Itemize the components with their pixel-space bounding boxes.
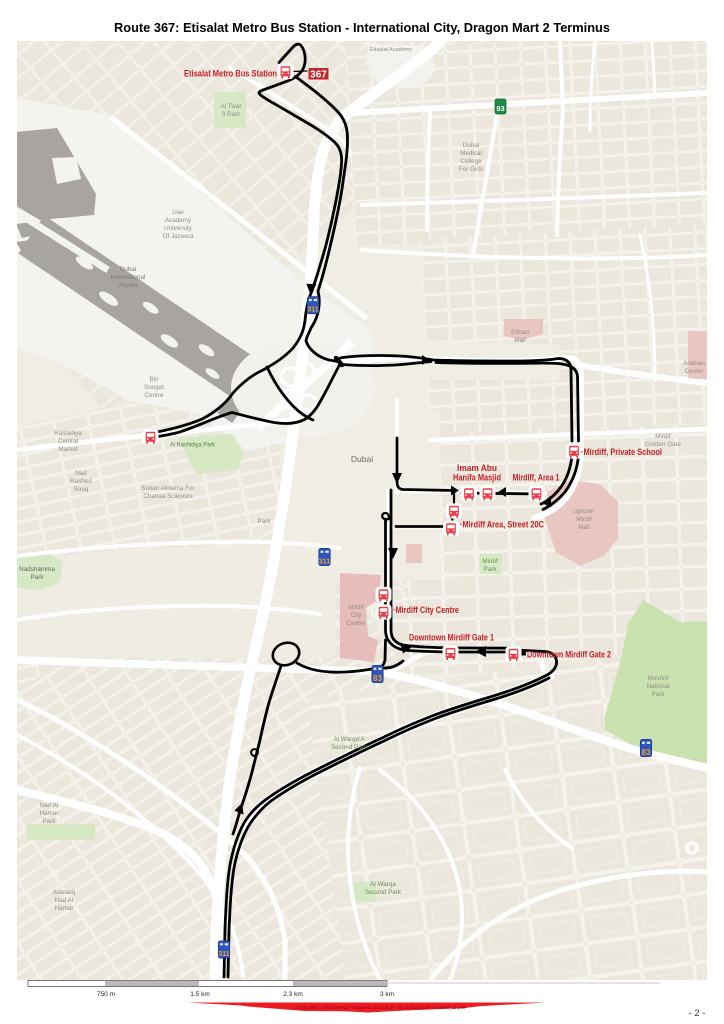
svg-text:Dubai: Dubai <box>351 454 373 464</box>
svg-text:Arabian: Arabian <box>683 360 705 367</box>
svg-text:City: City <box>351 612 363 619</box>
svg-text:National: National <box>646 683 669 690</box>
svg-text:Park: Park <box>258 518 272 525</box>
svg-text:Mirdif: Mirdif <box>576 516 592 523</box>
svg-text:Golden Gate: Golden Gate <box>645 441 681 448</box>
svg-text:Hamar: Hamar <box>40 810 59 817</box>
svg-text:3 km: 3 km <box>380 991 394 998</box>
svg-text:Rashed: Rashed <box>70 478 92 485</box>
svg-text:Al Rashidiya Park: Al Rashidiya Park <box>170 442 216 449</box>
svg-text:Second Park: Second Park <box>365 889 402 896</box>
svg-text:·Mirdiff, Private School: ·Mirdiff, Private School <box>581 447 662 458</box>
svg-text:Etisalat Academy: Etisalat Academy <box>370 47 412 53</box>
svg-text:Aswaaq: Aswaaq <box>53 889 76 896</box>
svg-text:Park: Park <box>31 574 45 581</box>
svg-text:Al Warqa'A: Al Warqa'A <box>333 736 365 743</box>
svg-text:Mall: Mall <box>514 337 526 344</box>
svg-text:Nad Al: Nad Al <box>40 802 59 809</box>
svg-text:Dubai: Dubai <box>463 142 479 149</box>
svg-text:University: University <box>164 225 192 232</box>
svg-text:311: 311 <box>307 307 318 314</box>
svg-text:1.5 km: 1.5 km <box>190 991 210 998</box>
svg-text:311: 311 <box>218 951 229 958</box>
svg-text:Souq: Souq <box>74 486 89 493</box>
svg-text:Mirdif: Mirdif <box>348 604 364 611</box>
svg-text:For Girls: For Girls <box>459 166 483 173</box>
svg-text:GRJFLIVE1 - GRJFLIVE-Cg - WpSe: GRJFLIVE1 - GRJFLIVE-Cg - WpServer (10.0… <box>295 1005 465 1010</box>
svg-text:Etisalat Metro Bus Station: Etisalat Metro Bus Station <box>184 69 277 80</box>
svg-text:83: 83 <box>642 748 651 757</box>
svg-text:Mirdif: Mirdif <box>655 433 671 440</box>
svg-text:Park: Park <box>484 566 498 573</box>
svg-text:Centre: Centre <box>347 620 366 627</box>
svg-text:Mushrif: Mushrif <box>648 675 669 682</box>
svg-text:Al Warqa: Al Warqa <box>370 881 396 888</box>
svg-text:Chariaa Sciences: Chariaa Sciences <box>143 493 192 500</box>
svg-text:Hamar: Hamar <box>55 905 74 912</box>
svg-text:311: 311 <box>319 559 330 566</box>
svg-text:Sultan Alolama For: Sultan Alolama For <box>141 485 194 492</box>
svg-text:2.3 km: 2.3 km <box>283 991 303 998</box>
svg-text:- 2 -: - 2 - <box>689 1008 706 1019</box>
svg-text:Bin: Bin <box>149 376 159 383</box>
svg-text:Hanifa Masjid: Hanifa Masjid <box>453 473 501 484</box>
svg-text:93: 93 <box>496 104 504 113</box>
svg-text:Central: Central <box>58 438 78 445</box>
svg-text:Center: Center <box>685 368 704 375</box>
svg-text:Airport: Airport <box>119 282 138 289</box>
svg-text:College: College <box>460 158 482 165</box>
svg-text:367: 367 <box>310 69 327 80</box>
svg-text:Etihad: Etihad <box>511 329 529 336</box>
svg-text:Second Park: Second Park <box>331 744 368 751</box>
svg-text:3 Park: 3 Park <box>222 111 241 118</box>
svg-text:Dubai: Dubai <box>120 266 136 273</box>
svg-text:Nadshamma: Nadshamma <box>19 566 55 573</box>
svg-text:Academy: Academy <box>165 217 192 224</box>
svg-text:Sougat: Sougat <box>144 384 164 391</box>
svg-text:Route 367: Etisalat Metro Bus: Route 367: Etisalat Metro Bus Station - … <box>114 20 610 35</box>
svg-text:Market: Market <box>58 446 77 453</box>
svg-text:International: International <box>111 274 146 281</box>
svg-text:Of Jazeera: Of Jazeera <box>163 233 194 240</box>
svg-text:83: 83 <box>373 674 382 683</box>
svg-text:Nad: Nad <box>75 470 87 477</box>
svg-text:Medical: Medical <box>460 150 482 157</box>
svg-text:Nad Al: Nad Al <box>55 897 74 904</box>
svg-text:Uptown: Uptown <box>573 508 595 515</box>
svg-text:Uae: Uae <box>172 209 184 216</box>
svg-text:Mall: Mall <box>578 524 590 531</box>
svg-text:Rashidiya: Rashidiya <box>54 430 82 437</box>
svg-text:·Mirdiff City Centre: ·Mirdiff City Centre <box>393 605 459 616</box>
svg-text:Downtown Mirdiff Gate 1: Downtown Mirdiff Gate 1 <box>409 633 495 644</box>
svg-text:Centre: Centre <box>145 392 164 399</box>
svg-text:Al Twar: Al Twar <box>221 103 242 110</box>
svg-text:Downtown Mirdiff Gate 2: Downtown Mirdiff Gate 2 <box>527 650 611 661</box>
svg-text:750 m: 750 m <box>97 991 115 998</box>
svg-text:Mirdif: Mirdif <box>482 558 498 565</box>
svg-text:·Mirdiff Area, Street 20C: ·Mirdiff Area, Street 20C <box>460 520 544 531</box>
svg-text:Mirdiff, Area 1: Mirdiff, Area 1 <box>513 473 561 484</box>
svg-text:Park: Park <box>43 818 57 825</box>
svg-text:Park: Park <box>652 691 666 698</box>
